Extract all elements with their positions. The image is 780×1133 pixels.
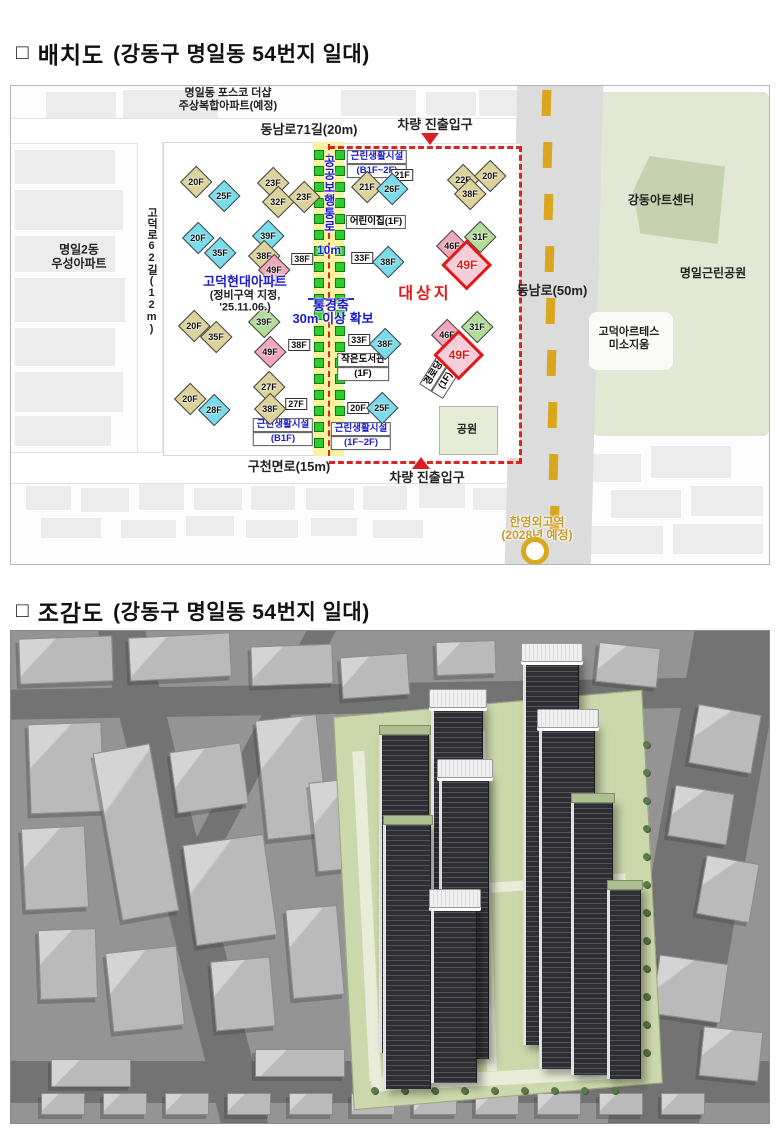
road-gucheonmyeon-label: 구천면로(15m) (248, 459, 331, 475)
building-marker-21f: 21F (359, 182, 375, 192)
building-marker-20f: 20F (188, 177, 204, 187)
building-marker-35f: 35F (212, 248, 228, 258)
hyundai-apartment-label: 고덕현대아파트 (203, 274, 287, 290)
building-marker-20f: 20F (482, 171, 498, 181)
checkbox-glyph: □ (16, 600, 29, 621)
facility-label-1: 어린이집(1F) (346, 215, 406, 229)
tree-icon (371, 1087, 378, 1094)
map-building-block (611, 490, 681, 518)
neighborhood-park-label: 명일근린공원 (680, 266, 746, 280)
building-marker-38f: 38F (377, 339, 393, 349)
facility-label-4: 근린생활시설(1F~2F) (331, 422, 391, 450)
map-building-block (673, 524, 763, 554)
corridor-dash (314, 406, 324, 416)
tree-icon (643, 937, 650, 944)
residential-tower-8 (607, 886, 641, 1079)
aerial-building-block (340, 653, 411, 700)
posco-label: 명일동 포스코 더샵주상복합아파트(예정) (179, 87, 277, 113)
tree-icon (643, 909, 650, 916)
corridor-dash (314, 342, 324, 352)
building-marker-27f: 27F (285, 398, 307, 410)
tree-icon (611, 1087, 618, 1094)
tree-icon (643, 881, 650, 888)
map-building-block (311, 518, 357, 536)
corridor-dash (335, 150, 345, 160)
map-building-block (15, 278, 125, 322)
corridor-dash (335, 278, 345, 288)
corridor-label: 공공보행통로 (322, 155, 336, 233)
aerial-building-block (41, 1093, 85, 1115)
road-centerline-dash (549, 454, 559, 480)
map-building-block (194, 488, 242, 510)
map-building-block (41, 518, 101, 538)
map-building-block (26, 486, 71, 510)
road-centerline-dash (543, 142, 553, 168)
myeongil-park-area (593, 92, 769, 436)
corridor-dash (335, 166, 345, 176)
building-marker-28f: 28F (206, 405, 222, 415)
aerial-view (10, 630, 770, 1124)
map-building-block (691, 486, 763, 516)
aerial-building-block (688, 704, 761, 774)
road-dongnam71-label: 동남로71길(20m) (261, 122, 358, 138)
map-building-block (341, 90, 416, 116)
checkbox-glyph: □ (16, 42, 29, 63)
corridor-dash (335, 198, 345, 208)
corridor-dash (314, 422, 324, 432)
aerial-building-block (182, 834, 277, 946)
aerial-building-block (169, 742, 249, 813)
corridor-dash (335, 214, 345, 224)
aerial-building-block (21, 825, 89, 910)
building-marker-32f: 32F (270, 197, 286, 207)
facility-label-2: 작은도서관(1F) (337, 353, 389, 381)
corridor-dash (314, 390, 324, 400)
tree-icon (643, 797, 650, 804)
wooseong-label: 명일2동우성아파트 (51, 243, 106, 272)
corridor-dash (314, 358, 324, 368)
road-centerline-dash (544, 194, 554, 220)
entrance-top-arrow-icon (421, 133, 439, 145)
aerial-building-block (289, 1093, 333, 1115)
entrance-bottom-label: 차량 진출입구 (389, 470, 464, 486)
map-building-block (373, 520, 423, 538)
corridor-dash (314, 438, 324, 448)
map-building-block (426, 92, 476, 116)
aerial-building-block (661, 1093, 705, 1115)
view-axis-note: 30m 이상 확보 (292, 311, 373, 327)
map-building-block (81, 488, 129, 512)
aerial-building-block (435, 640, 496, 676)
map-building-block (121, 520, 176, 538)
aerial-building-block (128, 632, 232, 681)
station-circle-icon (521, 537, 549, 565)
corridor-dash (335, 406, 345, 416)
map-building-block (46, 92, 116, 118)
site-plan-map: 명일동 포스코 더샵주상복합아파트(예정) 동남로71길(20m) 차량 진출입… (10, 85, 770, 565)
artes-label: 고덕아르테스미소지움 (599, 326, 660, 352)
road-dongnam-label: 동남로(50m) (517, 283, 588, 299)
aerial-building-block (699, 1026, 764, 1082)
aerial-building-block (18, 635, 114, 684)
tree-icon (643, 769, 650, 776)
corridor-dash (335, 182, 345, 192)
corridor-width-label: 10m (317, 243, 341, 257)
tree-icon (643, 1021, 650, 1028)
building-marker-49f: 49F (457, 258, 478, 272)
tree-icon (491, 1087, 498, 1094)
corridor-dash (335, 230, 345, 240)
road-godeok62-label: 고덕로62길(12m) (144, 207, 157, 335)
aerial-building-block (105, 945, 185, 1032)
site-plan-title: □ 배치도 (강동구 명일동 54번지 일대) (16, 36, 370, 70)
building-marker-20f: 20F (186, 321, 202, 331)
map-building-block (419, 484, 465, 508)
map-building-block (15, 372, 123, 412)
building-marker-33f: 33F (351, 252, 373, 264)
building-marker-25f: 25F (374, 403, 390, 413)
map-building-block (306, 488, 354, 510)
aerial-building-block (285, 905, 345, 999)
road-centerline-dash (542, 90, 552, 116)
building-marker-31f: 31F (472, 232, 488, 242)
building-marker-35f: 35F (208, 332, 224, 342)
site-plan-title-area: (강동구 명일동 54번지 일대) (113, 38, 370, 68)
map-building-block (15, 328, 115, 366)
map-building-block (363, 486, 407, 510)
corridor-dash (314, 278, 324, 288)
aerial-building-block (227, 1093, 271, 1115)
building-marker-20f: 20F (190, 233, 206, 243)
aerial-building-block (210, 957, 276, 1032)
corridor-dash (335, 342, 345, 352)
facility-label-3: 근린생활시설(B1F) (253, 418, 313, 446)
aerial-building-block (537, 1093, 581, 1115)
building-marker-49f: 49F (262, 347, 278, 357)
art-center-label: 강동아트센터 (628, 193, 694, 207)
tree-icon (461, 1087, 468, 1094)
map-building-block (139, 484, 184, 510)
corridor-dash (335, 262, 345, 272)
road-centerline-dash (547, 350, 557, 376)
building-marker-49f: 49F (449, 348, 470, 362)
tree-icon (643, 1049, 650, 1056)
residential-tower-9 (431, 903, 477, 1083)
building-marker-38f: 38F (288, 339, 310, 351)
tree-icon (643, 741, 650, 748)
corridor-dash (314, 262, 324, 272)
corridor-dash (335, 326, 345, 336)
aerial-building-block (38, 928, 98, 1000)
building-marker-27f: 27F (261, 382, 277, 392)
aerial-building-block (103, 1093, 147, 1115)
map-building-block (651, 446, 731, 478)
building-marker-33f: 33F (348, 334, 370, 346)
tree-icon (643, 993, 650, 1000)
building-marker-20f: 20F (182, 394, 198, 404)
residential-tower-7 (383, 821, 431, 1089)
aerial-building-block (696, 855, 760, 923)
road-centerline-dash (545, 246, 555, 272)
road-centerline-dash (548, 402, 558, 428)
building-marker-31f: 31F (469, 322, 485, 332)
map-building-block (246, 520, 298, 538)
aerial-building-block (165, 1093, 209, 1115)
tree-icon (551, 1087, 558, 1094)
tree-icon (581, 1087, 588, 1094)
corridor-dash (314, 374, 324, 384)
building-marker-38f: 38F (380, 257, 396, 267)
park-square-label: 공원 (457, 423, 477, 436)
building-marker-38f: 38F (291, 253, 313, 265)
map-building-block (15, 416, 111, 446)
aerial-title: □ 조감도 (강동구 명일동 54번지 일대) (16, 594, 370, 628)
tree-icon (643, 965, 650, 972)
road-centerline-dash (546, 298, 556, 324)
aerial-building-block (595, 642, 661, 688)
site-plan-title-text: 배치도 (38, 36, 104, 70)
map-building-block (15, 150, 115, 184)
page: □ 배치도 (강동구 명일동 54번지 일대) 명일동 포스코 더샵주상복합아파… (0, 0, 780, 1133)
corridor-dash (335, 390, 345, 400)
map-building-block (15, 190, 123, 230)
aerial-building-block (667, 785, 734, 846)
building-marker-23f: 23F (296, 192, 312, 202)
tree-icon (431, 1087, 438, 1094)
target-site-label: 대상지 (398, 284, 451, 303)
entrance-top-label: 차량 진출입구 (397, 117, 472, 133)
tree-icon (521, 1087, 528, 1094)
hyundai-note2: '25.11.06.) (219, 301, 271, 314)
entrance-bottom-arrow-icon (412, 457, 430, 469)
aerial-title-text: 조감도 (38, 594, 104, 628)
aerial-building-block (599, 1093, 643, 1115)
aerial-title-area: (강동구 명일동 54번지 일대) (113, 596, 370, 626)
aerial-building-block (51, 1059, 131, 1087)
aerial-building-block (255, 1049, 345, 1077)
aerial-building-block (250, 644, 333, 687)
building-marker-25f: 25F (216, 191, 232, 201)
building-marker-39f: 39F (256, 317, 272, 327)
map-building-block (186, 516, 234, 536)
map-building-block (251, 486, 295, 510)
aerial-building-block (651, 954, 729, 1023)
aerial-building-block (27, 722, 104, 815)
map-building-block (479, 90, 519, 116)
building-marker-38f: 38F (262, 404, 278, 414)
corridor-dash (314, 326, 324, 336)
building-marker-26f: 26F (384, 184, 400, 194)
building-marker-38f: 38F (462, 189, 478, 199)
tree-icon (643, 853, 650, 860)
tree-icon (643, 825, 650, 832)
